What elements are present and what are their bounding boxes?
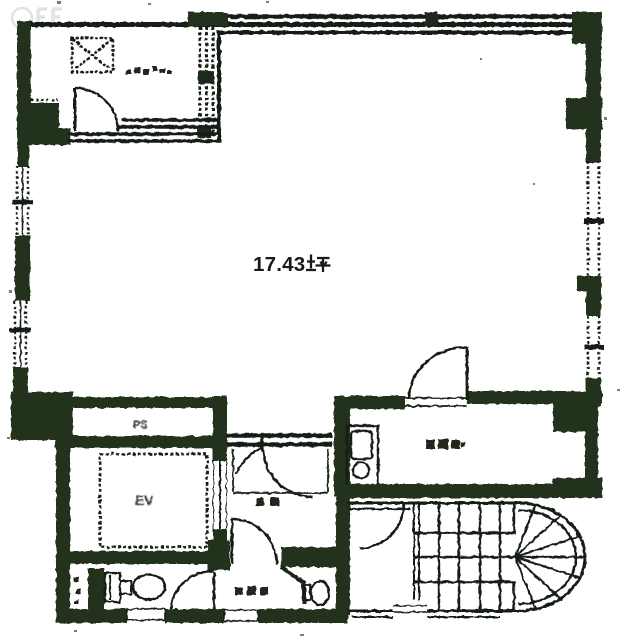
svg-text:PS: PS — [133, 419, 148, 431]
svg-text:EV: EV — [135, 492, 154, 508]
svg-text:17.43: 17.43 — [253, 253, 305, 276]
